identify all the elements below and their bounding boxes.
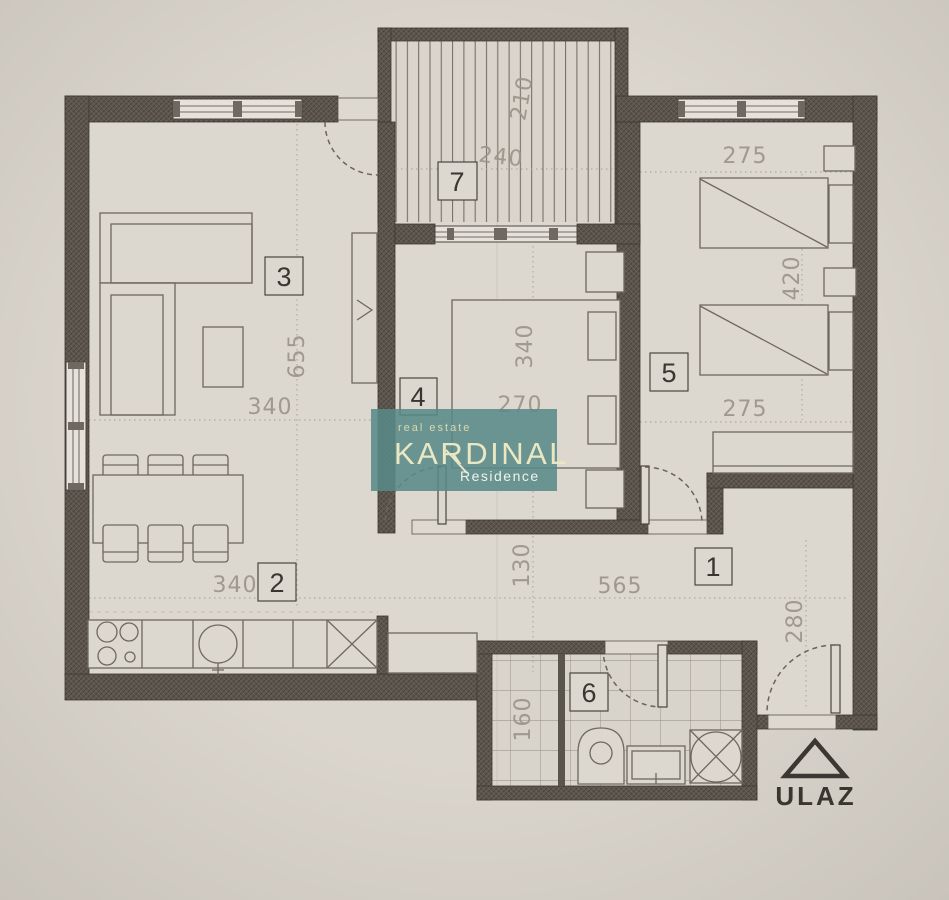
shower (690, 730, 742, 783)
room-label-kitchen: 2 (258, 563, 296, 601)
room-number-3: 3 (276, 262, 291, 292)
nightstand (586, 252, 624, 292)
dim-balcony-width: 240 (477, 143, 524, 173)
floorplan-drawing: 7 3 4 5 2 1 6 210 240 340 655 (0, 0, 949, 900)
room-number-6: 6 (581, 678, 596, 708)
coffee-table (203, 327, 243, 387)
dim-bath-width: 160 (511, 697, 536, 742)
room-label-bathroom: 6 (570, 673, 608, 711)
dim-dining-width: 340 (213, 573, 258, 598)
bath-sink (627, 746, 685, 784)
dim-hall-clear: 130 (510, 543, 535, 588)
room-number-2: 2 (269, 568, 284, 598)
wardrobe (713, 432, 853, 473)
chair (148, 525, 183, 562)
room-label-living: 3 (265, 257, 303, 295)
dim-entry-depth: 280 (783, 599, 808, 644)
nightstand (586, 470, 624, 508)
dim-bedroom5-width-top: 275 (723, 144, 768, 169)
balcony-deck (391, 41, 615, 222)
room-number-5: 5 (661, 358, 676, 388)
room-number-1: 1 (705, 552, 720, 582)
room-number-4: 4 (410, 382, 425, 412)
dim-living-width: 340 (248, 395, 293, 420)
tv-unit (352, 233, 377, 383)
living-room-window (173, 99, 302, 119)
floorplan-photo: 7 3 4 5 2 1 6 210 240 340 655 (0, 0, 949, 900)
dim-living-length: 655 (285, 334, 310, 379)
kitchen-counter (88, 620, 377, 676)
entrance-label: ULAZ (775, 781, 856, 811)
room-label-hallway: 1 (695, 548, 732, 585)
dim-hall-length: 565 (598, 574, 643, 599)
toilet (578, 728, 624, 784)
bedroom5-window (678, 99, 805, 119)
room-label-bedroom5: 5 (650, 353, 688, 391)
living-room-side-window (66, 362, 86, 490)
watermark-logo: real estate KARDINAL Residence (371, 409, 569, 491)
watermark-tagline: real estate (398, 422, 471, 434)
room-number-7: 7 (449, 167, 464, 197)
dim-bedroom5-width-bottom: 275 (723, 397, 768, 422)
dining-table-set (93, 455, 243, 562)
dim-bedroom4-length: 340 (513, 324, 538, 369)
room-label-balcony: 7 (438, 162, 477, 200)
balcony-slider-window (435, 226, 577, 242)
chair (193, 525, 228, 562)
nightstand (824, 146, 855, 171)
dim-bedroom5-length: 420 (780, 256, 805, 301)
chair (103, 525, 138, 562)
watermark-brand: KARDINAL (394, 436, 569, 471)
watermark-subtitle: Residence (460, 468, 540, 484)
nightstand (824, 268, 856, 296)
